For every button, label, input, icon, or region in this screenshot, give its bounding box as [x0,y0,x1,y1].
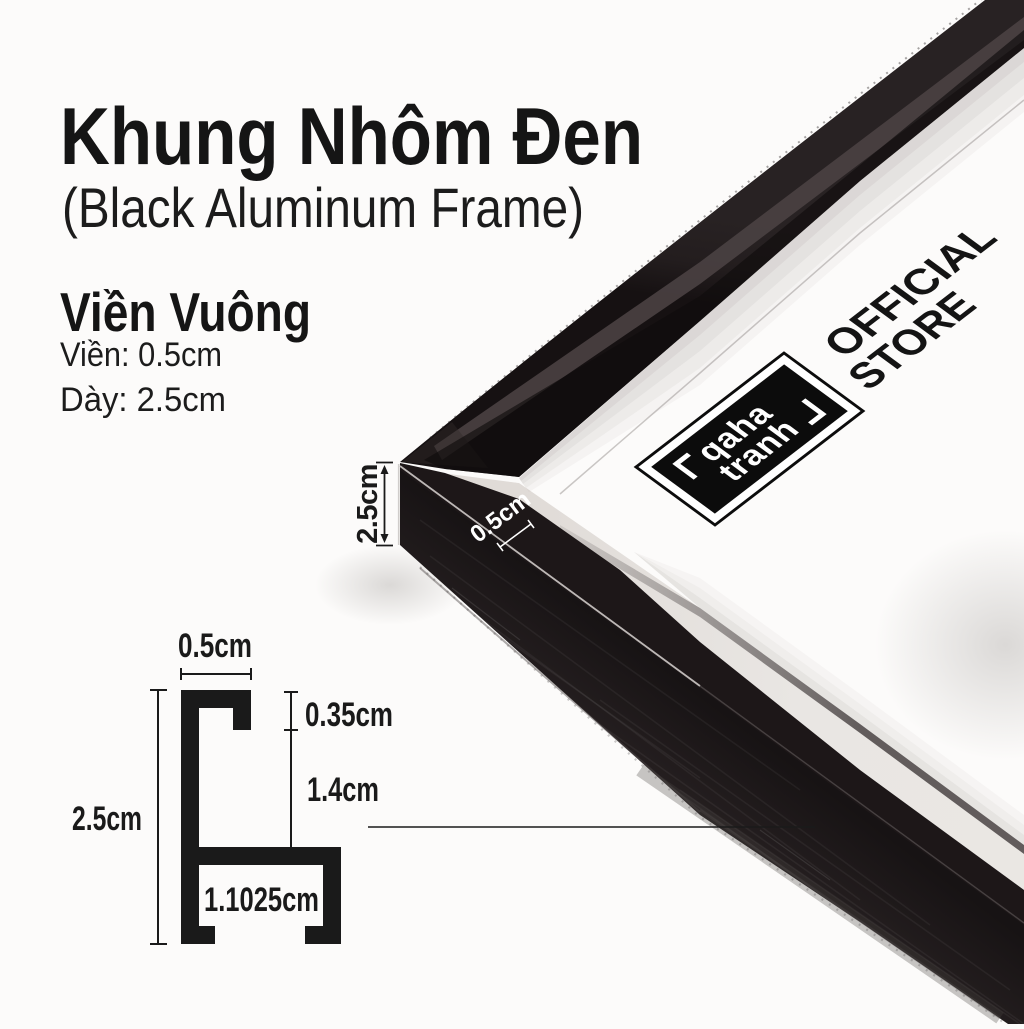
svg-text:2.5cm: 2.5cm [352,464,384,544]
svg-text:0.35cm: 0.35cm [305,696,393,734]
svg-text:1.1025cm: 1.1025cm [204,881,319,919]
svg-text:1.4cm: 1.4cm [307,771,379,809]
svg-text:Khung Nhôm Đen: Khung Nhôm Đen [60,92,643,182]
svg-text:(Black Aluminum Frame): (Black Aluminum Frame) [62,176,584,239]
svg-text:Dày: 2.5cm: Dày: 2.5cm [60,381,226,419]
svg-text:Viền: 0.5cm: Viền: 0.5cm [60,336,222,374]
svg-text:0.5cm: 0.5cm [178,627,252,665]
svg-text:2.5cm: 2.5cm [72,800,142,838]
svg-text:Viền Vuông: Viền Vuông [60,281,311,343]
